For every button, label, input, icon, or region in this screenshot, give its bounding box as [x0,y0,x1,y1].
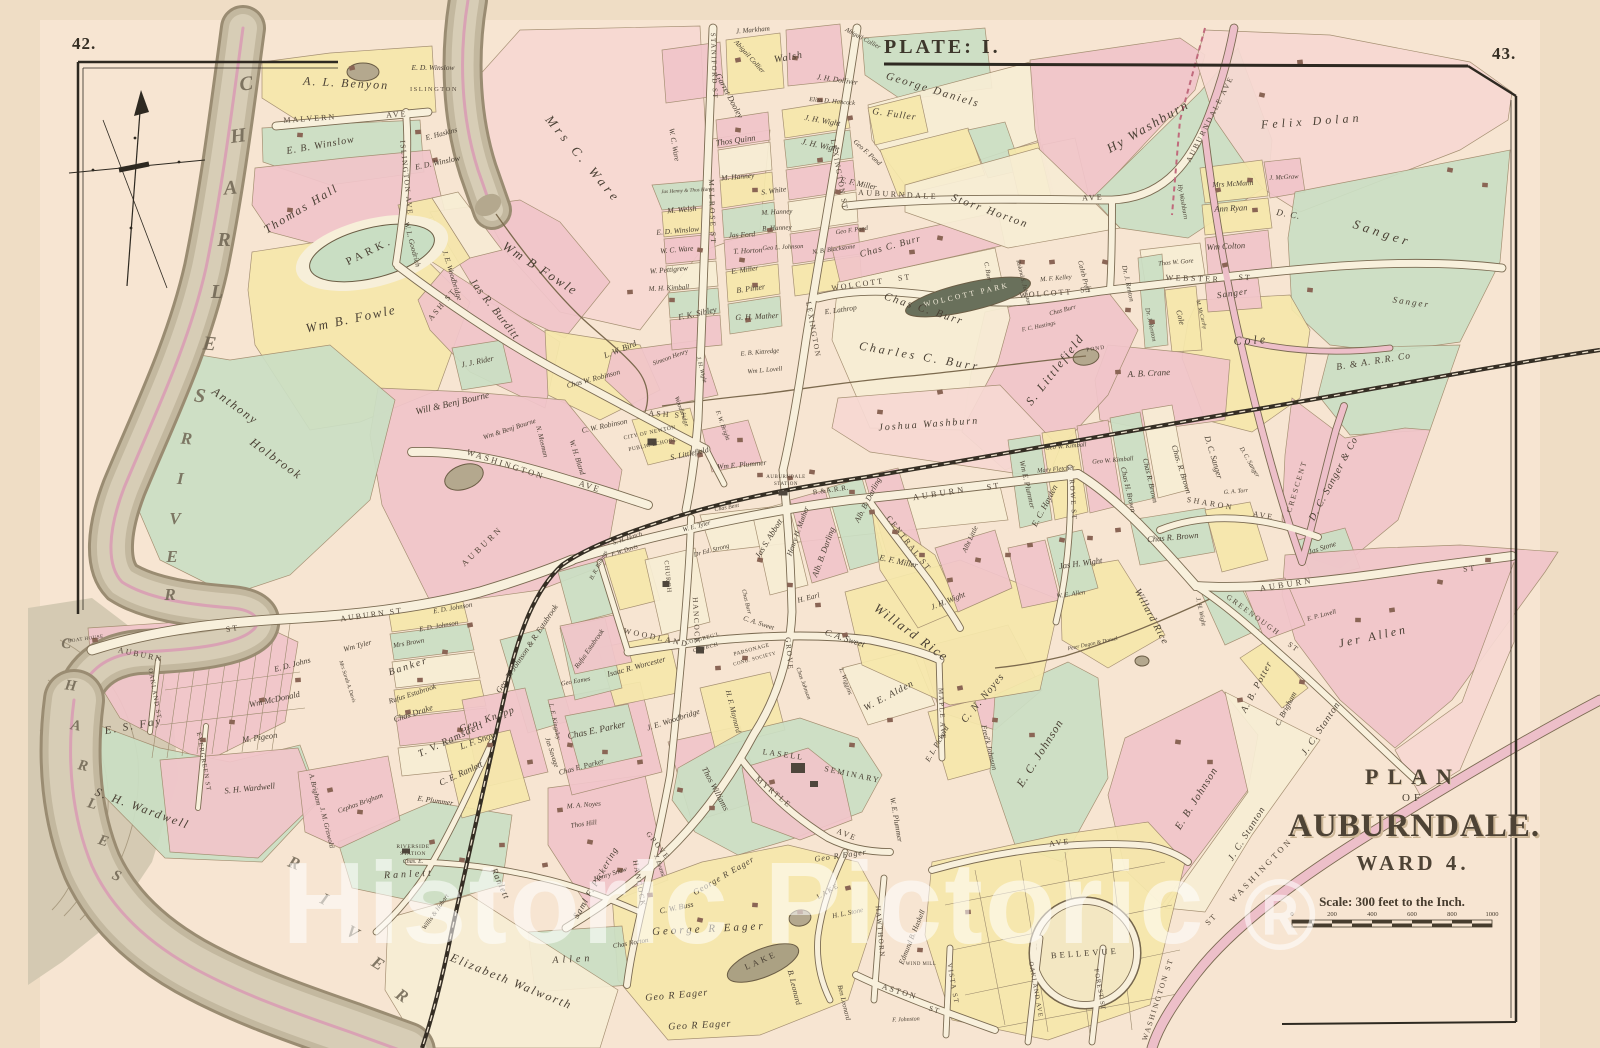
plate-label: PLATE: I. [884,36,1001,59]
scale-bar-segment [1312,924,1332,928]
map-label: Allen [551,953,594,966]
map-label: Cole [1233,332,1268,348]
compass-dot [92,169,95,172]
building [1125,308,1131,313]
map-label: L [210,281,223,303]
building [1207,760,1213,764]
building [1115,370,1121,375]
building [917,948,923,953]
map-label: WEBSTER [1166,273,1221,284]
building [527,759,533,764]
map-label: R [163,585,175,604]
map-title-block: PLAN OF AUBURNDALE. WARD 4. [1288,764,1538,876]
compass-dot [130,227,133,230]
scale-text: Scale: 300 feet to the Inch. [1319,894,1465,909]
map-label: ISLINGTON [410,86,458,93]
map-label: Chas. E. [403,859,424,865]
building [1029,733,1035,738]
map-label: B. Hanney [762,223,793,233]
building [709,806,715,811]
building [1175,739,1181,744]
scale-tick-label: 400 [1367,911,1377,918]
building [487,743,493,747]
scale-bar-segment [1332,920,1352,924]
building [557,807,563,812]
compass-dot [134,137,137,140]
building [417,678,423,682]
building [815,603,821,608]
building [757,473,763,477]
page-number-left: 42. [72,34,96,54]
building [877,409,883,414]
building [965,910,971,915]
building [887,718,893,723]
neatline [884,64,1468,66]
title-name: AUBURNDALE. [1288,808,1538,845]
scale-bar-segment [1392,924,1412,928]
title-ward: WARD 4. [1288,851,1538,876]
scale-bar-segment [1372,920,1392,924]
map-label: Wm Colton [1206,240,1245,252]
map-label: WIND MILL [906,962,936,967]
building [602,750,608,754]
building [909,249,915,254]
building [947,577,953,582]
scale-bar-segment [1472,924,1492,928]
building [787,583,793,588]
scale-bar-segment [1292,920,1312,924]
building [797,910,803,915]
page-number-right: 43. [1492,44,1516,64]
land-parcel [670,315,722,350]
building [992,717,998,722]
map-label: Jas Ford [728,229,755,239]
scale-bar-segment [1352,924,1372,928]
scale-bar-segment [1452,920,1472,924]
building [1307,288,1313,293]
road [1110,200,1112,290]
building [1482,183,1488,188]
building [752,903,758,908]
map-label: E [165,547,177,566]
building [1049,260,1055,265]
map-label: R [216,229,230,251]
public-building [779,491,788,496]
map-canvas: CHARLESRIVERCHARLESRIVERMALVERNAVEISLING… [0,0,1600,1048]
map-label: ST [1463,563,1477,573]
scale-tick-label: 0 [1290,911,1293,918]
map-label: V [169,509,182,528]
scale-tick-label: 200 [1327,911,1337,918]
map-label: T. Horton [733,245,763,256]
map-label: STATION [400,851,426,857]
map-feature [1135,656,1149,666]
building [849,490,855,494]
building [297,133,303,138]
building [1355,618,1361,622]
map-label: Ann Ryan [1213,202,1248,214]
building [1027,542,1033,547]
building [715,666,721,671]
atlas-page: { "page": {"left_page_no":"42.","right_p… [0,0,1600,1048]
map-label: RIVERSIDE [396,844,429,850]
public-building [810,781,818,787]
map-label: ST [1238,273,1252,282]
building [1005,553,1011,558]
building [229,719,235,724]
building [739,257,745,262]
map-label: AVE [386,109,408,119]
building [459,857,465,862]
scale-tick-label: 1000 [1486,911,1499,918]
map-label: AUBURNDALE [766,475,805,480]
map-label: AVE [1082,192,1104,202]
building [1087,536,1093,541]
land-parcel [1205,230,1272,275]
building [1485,558,1491,563]
building [669,298,675,302]
building [1237,697,1243,702]
building [1389,607,1395,612]
building [1252,208,1258,213]
building [737,438,743,443]
building [735,127,741,132]
building [809,469,815,474]
map-label: ST [897,272,911,283]
building [637,759,643,764]
public-building [791,763,805,773]
building [627,290,633,295]
map-label: STATION [774,482,798,487]
scale-tick-label: 600 [1407,911,1417,918]
building [817,157,823,162]
title-plan: PLAN [1288,764,1538,790]
map-label: E [201,332,217,355]
building [295,678,301,683]
scale-bar-segment [1412,920,1432,924]
scale-tick-label: 800 [1447,911,1457,918]
building [357,810,363,815]
map-label: E. D. Winslow [411,63,455,72]
building [499,843,505,847]
building [1297,60,1303,65]
building [442,649,448,654]
scale-bar-segment [1432,924,1452,928]
building [647,893,653,898]
map-label: R [179,428,193,448]
title-of: OF [1288,792,1538,804]
building [415,130,421,135]
building [849,743,855,748]
building [752,188,758,192]
compass-dot [178,161,181,164]
building [869,509,875,514]
building [1115,528,1121,533]
